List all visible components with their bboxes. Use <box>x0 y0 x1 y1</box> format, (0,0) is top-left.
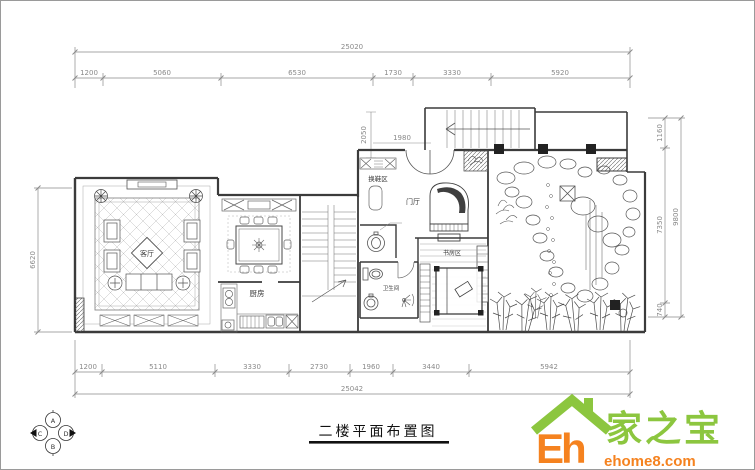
plant-icon <box>190 190 203 203</box>
column <box>610 300 620 310</box>
dim-right-seg-0: 1160 <box>656 124 664 142</box>
kitchen-label: 厨房 <box>250 288 265 298</box>
bookshelf <box>420 264 430 322</box>
dim-inner-h: 1980 <box>393 134 411 142</box>
living-room-label: 客厅 <box>140 249 154 258</box>
dim-bot-seg-5: 3440 <box>422 363 440 371</box>
dim-top-seg-3: 1730 <box>384 69 402 77</box>
dim-top-seg-1: 5060 <box>153 69 171 77</box>
dim-bot-seg-1: 5110 <box>149 363 167 371</box>
dim-top-seg-0: 1200 <box>80 69 98 77</box>
logo-site-text: ehome8.com <box>604 453 696 470</box>
dim-bot-seg-0: 1200 <box>79 363 97 371</box>
dim-top-seg-2: 6530 <box>288 69 306 77</box>
shoe-area-label: 换鞋区 <box>368 174 388 183</box>
shoe-cabinet <box>360 158 396 169</box>
dim-bot-seg-6: 5942 <box>540 363 558 371</box>
dim-bot-seg-2: 3330 <box>243 363 261 371</box>
marker-b: B <box>51 443 55 451</box>
dim-bot-total: 25042 <box>341 385 363 393</box>
marker-c: C <box>38 430 43 438</box>
marker-a: A <box>51 417 56 425</box>
dining-table <box>236 226 282 264</box>
column <box>538 144 548 154</box>
dim-right-seg-1: 7350 <box>656 216 664 234</box>
dining-cabinet <box>222 199 296 211</box>
table-centerpiece <box>252 238 266 252</box>
study-label: 书房区 <box>443 249 461 257</box>
dim-top-seg-5: 5920 <box>551 69 569 77</box>
dim-bot-seg-4: 1960 <box>362 363 380 371</box>
tv-cabinet <box>127 180 177 189</box>
logo-name-text: 家之宝 <box>606 408 723 449</box>
column <box>586 144 596 154</box>
dim-bot-seg-3: 2730 <box>310 363 328 371</box>
dim-inner-v: 2050 <box>360 126 368 144</box>
bathroom-label: 卫生间 <box>383 284 400 292</box>
dim-top-seg-4: 3330 <box>443 69 461 77</box>
floorplan-canvas: 25020 1200 5060 6530 1730 3330 5920 1200… <box>0 0 755 470</box>
dim-left-seg-0: 6620 <box>29 251 37 269</box>
planter-box <box>464 151 488 171</box>
plant-icon <box>95 190 108 203</box>
logo-eh-text: Eh <box>536 425 585 470</box>
bottom-cabinets <box>100 315 198 326</box>
dim-right-seg-2: 740 <box>656 303 664 316</box>
desk <box>434 266 484 316</box>
title-underline <box>309 441 449 444</box>
dim-top-total: 25020 <box>341 43 363 51</box>
dim-right-total: 9800 <box>672 208 680 226</box>
marker-d: D <box>63 430 68 438</box>
foyer-label: 门厅 <box>406 197 420 206</box>
column <box>494 144 504 154</box>
floorplan-drawing: 25020 1200 5060 6530 1730 3330 5920 1200… <box>0 0 755 470</box>
drawing-title: 二楼平面布置图 <box>319 424 438 440</box>
ehome8-logo: Eh 家之宝 ehome8.com <box>534 398 723 470</box>
